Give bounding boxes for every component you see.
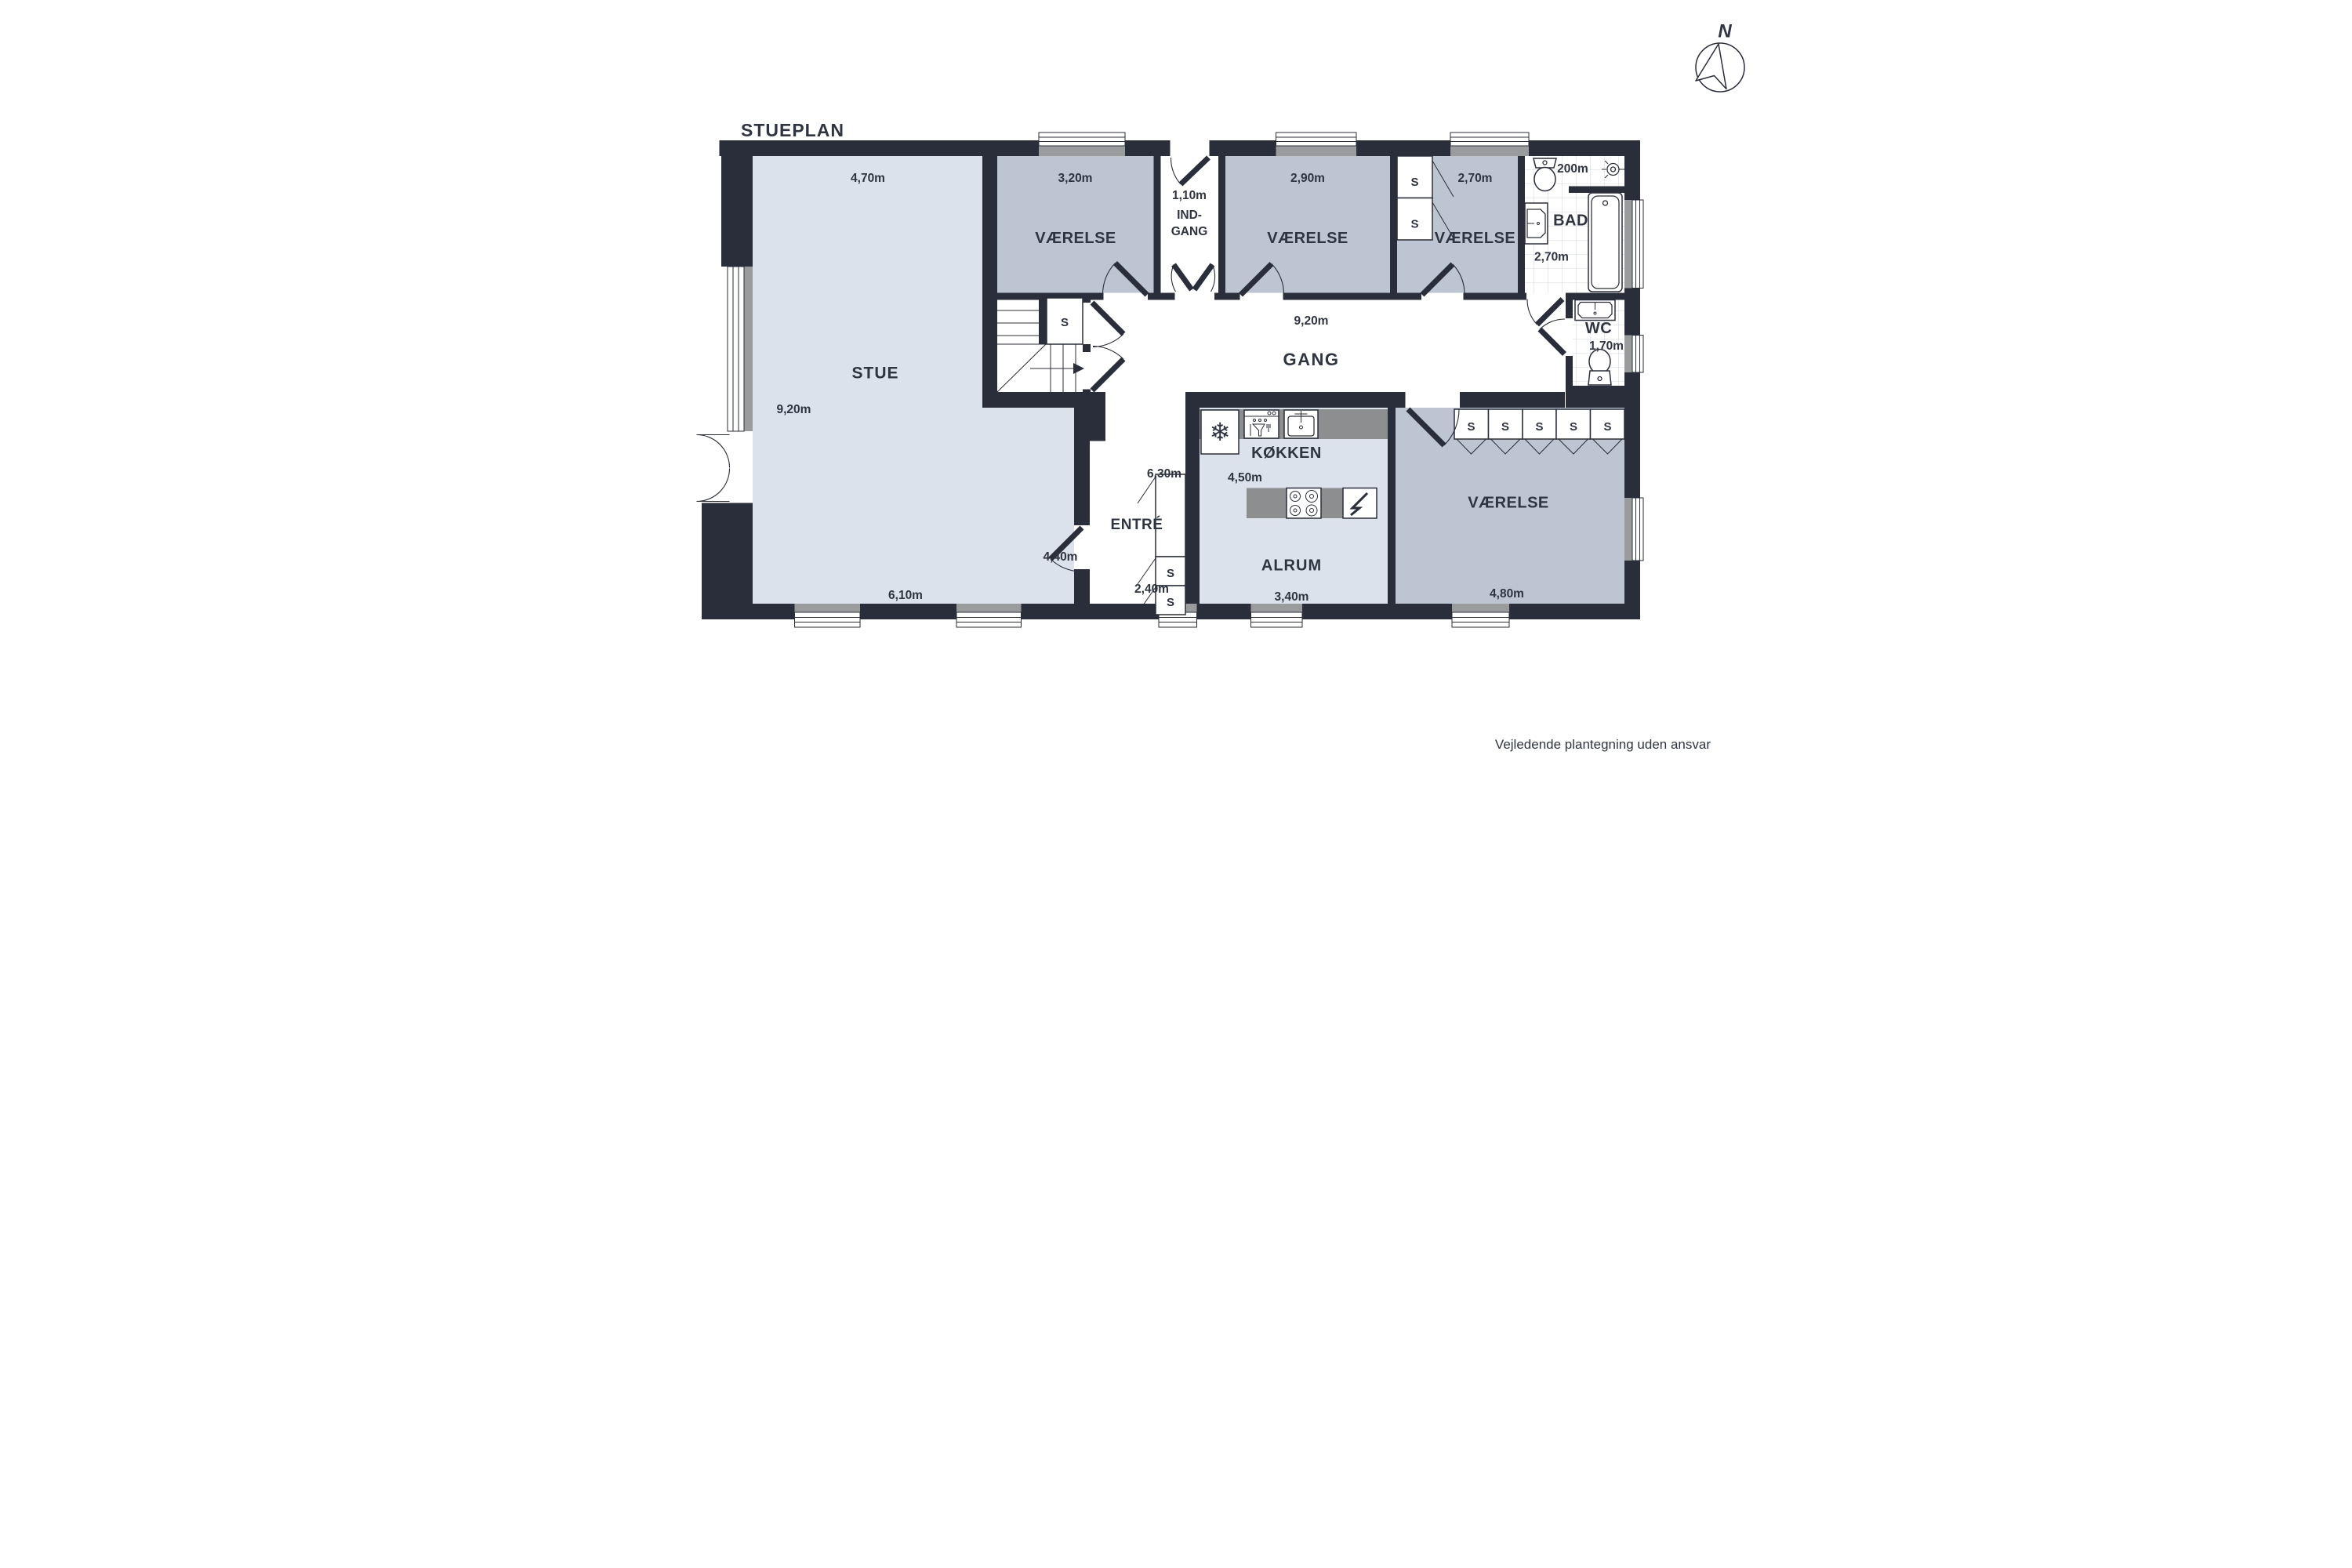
- floor-plan-page: ❄: [588, 0, 1764, 784]
- door-french-stue: [697, 435, 730, 502]
- door-stairs: [1092, 347, 1123, 391]
- label-room-entre: ENTRÉ: [1111, 516, 1163, 533]
- label-dim-stue-bottom: 6,10m: [888, 589, 923, 602]
- window-top-vaerelse1: [1039, 132, 1125, 156]
- bathtub: [1588, 193, 1622, 292]
- label-footer: Vejledende plantegning uden ansvar: [1495, 737, 1711, 752]
- label-dim-wc: 1,70m: [1589, 339, 1624, 353]
- window-top-vaerelse3: [1450, 132, 1529, 156]
- label-room-stue: STUE: [851, 365, 898, 383]
- label-dim-alrum-bottom: 3,40m: [1275, 590, 1309, 604]
- label-room-vaerelse-3: VÆRELSE: [1435, 230, 1516, 247]
- label-room-bad: BAD: [1553, 212, 1588, 230]
- label-s-top-2: S: [1410, 218, 1418, 231]
- sink-wc: [1575, 300, 1615, 321]
- label-dim-alrum-left: 4,50m: [1228, 471, 1262, 485]
- compass: [1696, 43, 1744, 92]
- electrical-panel: [1343, 488, 1377, 519]
- label-compass-n: N: [1718, 21, 1732, 42]
- stove: [1287, 488, 1321, 519]
- window-left-stue: [728, 267, 753, 431]
- door-indgang-gang: [1171, 265, 1214, 292]
- window-bottom-alrum: [1251, 604, 1303, 627]
- window-bottom-stue-2: [956, 604, 1022, 627]
- window-bottom-vaerelse4: [1452, 604, 1509, 627]
- label-s-row-1: S: [1467, 420, 1475, 434]
- label-dim-stue-top: 4,70m: [851, 172, 885, 185]
- toilet-wc: [1588, 350, 1611, 386]
- label-room-alrum: ALRUM: [1261, 557, 1322, 575]
- label-title: STUEPLAN: [741, 120, 844, 140]
- door-bad: [1527, 299, 1563, 325]
- door-wc: [1540, 319, 1565, 354]
- label-room-vaerelse-1: VÆRELSE: [1035, 230, 1116, 247]
- kitchen-sink: [1284, 410, 1318, 438]
- label-dim-bad-top: 200m: [1557, 162, 1588, 176]
- label-dim-entre-bottom: 2,40m: [1134, 583, 1169, 596]
- label-room-vaerelse-2: VÆRELSE: [1267, 230, 1348, 247]
- window-right-wc: [1624, 336, 1643, 373]
- label-dim-entre-top: 6,30m: [1147, 467, 1181, 481]
- window-top-vaerelse2: [1276, 132, 1357, 156]
- door-stairs-closet: [1092, 303, 1123, 347]
- label-dim-stue-door: 4,40m: [1044, 550, 1078, 564]
- fridge: ❄: [1201, 410, 1239, 454]
- window-bottom-stue-1: [795, 604, 861, 627]
- floor-plan-svg: ❄: [588, 0, 1764, 784]
- cabinet-entre: [1156, 474, 1185, 557]
- label-s-row-4: S: [1570, 420, 1577, 434]
- label-s-row-5: S: [1603, 420, 1611, 434]
- door-entrance: [1171, 158, 1208, 184]
- label-dim-indgang: 1,10m: [1172, 189, 1207, 202]
- label-s-stairs: S: [1061, 316, 1069, 329]
- label-room-wc: WC: [1585, 320, 1612, 337]
- sink-bad: [1525, 203, 1548, 244]
- label-room-vaerelse-4: VÆRELSE: [1468, 495, 1549, 512]
- label-s-top-1: S: [1410, 176, 1418, 189]
- label-s-row-3: S: [1535, 420, 1543, 434]
- label-room-kokken: KØKKEN: [1251, 445, 1322, 462]
- window-right-bad: [1624, 200, 1643, 289]
- dishwasher: [1244, 410, 1279, 438]
- window-right-vaerelse4: [1624, 498, 1643, 561]
- label-room-gang: GANG: [1283, 350, 1340, 369]
- label-s-entre-2: S: [1167, 596, 1174, 609]
- label-dim-bad: 2,70m: [1534, 251, 1569, 264]
- label-dim-vaerelse3-top: 2,70m: [1458, 172, 1493, 185]
- label-dim-vaerelse4: 4,80m: [1490, 587, 1524, 601]
- label-room-indgang-1: IND-: [1177, 209, 1202, 222]
- label-s-entre-1: S: [1167, 567, 1174, 580]
- label-dim-gang: 9,20m: [1294, 314, 1329, 328]
- label-dim-vaerelse2-top: 2,90m: [1290, 172, 1325, 185]
- toilet-bad: [1534, 158, 1556, 191]
- label-dim-vaerelse1-top: 3,20m: [1058, 172, 1093, 185]
- freezer-icon: ❄: [1210, 417, 1231, 447]
- label-room-indgang-2: GANG: [1171, 225, 1208, 238]
- label-s-row-2: S: [1501, 420, 1509, 434]
- label-dim-stue-left: 9,20m: [777, 403, 811, 416]
